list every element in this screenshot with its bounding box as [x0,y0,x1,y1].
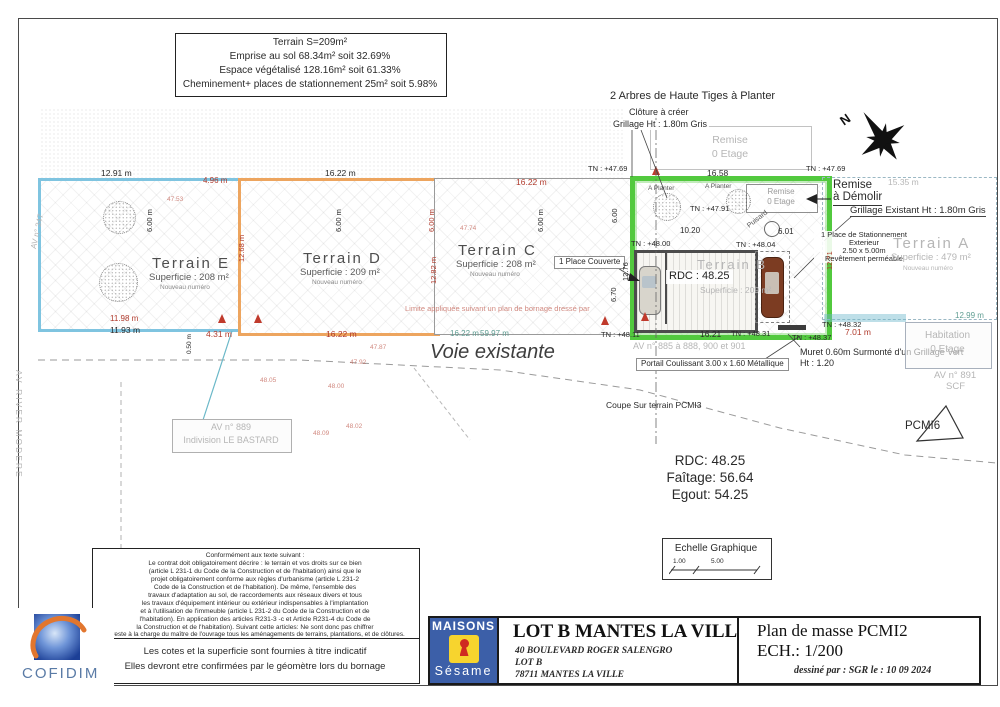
annotation-place-couverte: 1 Place Couverte [554,256,625,269]
legal-text-box: Conformément aux texte suivant : Le cont… [92,548,420,640]
legal-line: l'habitation). En application des articl… [95,616,415,623]
dim-label: 6.00 m [428,209,436,232]
terrain-e-name: Terrain E [152,256,230,272]
dim-label: 6.00 m [146,209,154,232]
dim-label: 12.71 [826,251,834,270]
annotation-av885: AV n° 885 à 888, 900 et 901 [633,342,746,352]
title-block-project: LOT B MANTES LA VILLE 40 BOULEVARD ROGER… [497,616,741,685]
cofidim-logo: COFIDIM [18,608,114,700]
annotation-coupe: Coupe Sur terrain PCMI3 [606,401,701,410]
annotation-a-planter: A Planter [648,185,674,192]
level-rdc: RDC: 48.25 [640,452,780,469]
dim-label: 6.00 m [335,209,343,232]
scale-bar-icon [669,565,765,575]
notes-box: Les cotes et la superficie sont fournies… [92,638,420,684]
levels-summary: RDC: 48.25 Faîtage: 56.64 Egout: 54.25 [640,452,780,503]
stats-line: Espace végétalisé 128.16m² soit 61.33% [176,66,444,77]
dim-label: 16.21 [700,330,721,339]
annotation-muret-2: Ht : 1.20 [798,359,836,369]
annotation-remise-demolir: Remise à Démolir [833,179,882,206]
annotation-limite-bornage: Limite appliquée suivant un plan de born… [405,305,590,313]
plan-title: Plan de masse PCMI2 [757,622,908,640]
annotation-grillage-existant: Grillage Existant Ht : 1.80m Gris [850,206,986,217]
survey-level: 47.92 [350,359,366,366]
dim-label: 16.58 [707,169,728,178]
title-block-plan: Plan de masse PCMI2 ECH.: 1/200 dessiné … [737,616,981,685]
limit-dashed [414,368,470,440]
dim-label: 12.82 m [430,257,438,284]
terrain-a-name: Terrain A [893,236,970,252]
av889-line: Indivision LE BASTARD [173,436,289,446]
arrow-left-icon [806,194,817,204]
stats-line: Cheminement+ places de stationnement 25m… [176,80,444,91]
project-address: 40 BOULEVARD ROGER SALENGRO [515,646,672,656]
stats-line: Terrain S=209m² [176,38,444,49]
annotation-grillage-cree: Grillage Ht : 1.80m Gris [611,120,709,130]
maisons-sesame-logo: MAISONS Sésame [428,616,501,685]
blue-network-line [203,331,232,420]
legal-line: les travaux d'équipement intérieur ou ex… [95,600,415,607]
maisons-logo-text: MAISONS [430,620,497,633]
compass-north-label: N [837,111,853,129]
survey-level: 47.87 [370,344,386,351]
legal-line: et à l'utilisation de l'immeuble (articl… [95,608,415,615]
av889-box: AV n° 889 Indivision LE BASTARD [172,419,292,453]
cofidim-swoosh-icon [18,604,114,670]
dim-label: 12.99 m [955,312,984,321]
plan-de-masse-sheet: Remise 0 Etage Remise 0 Etage [0,0,1000,707]
tn-level: TN : +48.00 [631,240,670,248]
scale-tick-1: 1.00 [673,558,686,565]
project-city: 78711 MANTES LA VILLE [515,670,624,680]
terrain-e-area: Superficie : 208 m² [149,273,229,283]
dim-label: 11.93 m [110,326,140,335]
annotation-pcmi6: PCMI6 [905,420,940,432]
annotation-a-planter: A Planter [705,183,731,190]
level-egout: Egout: 54.25 [640,486,780,503]
dim-label: 6.01 [778,228,794,237]
annotation-cloture: Clôture à créer [627,108,691,118]
terrain-c-area: Superficie : 208 m² [456,260,536,270]
survey-level: 48.05 [260,377,276,384]
survey-level: 48.02 [346,423,362,430]
sesame-logo-text: Sésame [430,665,497,679]
av889-line: AV n° 889 [173,423,289,433]
road-name-voie-existante: Voie existante [430,342,555,364]
tn-level: TN : +48.04 [736,241,775,249]
tn-level: TN : +48.37 [792,334,831,342]
habitation-line: Habitation [906,331,989,342]
dim-label: 12.91 m [101,169,132,178]
project-title: LOT B MANTES LA VILLE [513,622,750,643]
notes-line: Les cotes et la superficie sont fournies… [93,647,417,657]
tn-level: TN : +47.69 [806,165,845,173]
dim-label: 16.22 m [326,330,357,339]
habitation-line: 0 Etage [906,345,989,356]
tn-level: TN : +48.32 [822,321,861,329]
terrain-c-note: Nouveau numéro [470,271,520,278]
legal-line: (article L 231-1 du Code de la Construct… [95,568,415,575]
plan-scale: ECH.: 1/200 [757,642,843,660]
survey-level: 48.00 [328,383,344,390]
project-lot: LOT B [515,658,542,668]
terrain-b-area: Superficie : 209 m² [700,286,771,295]
terrain-d-note: Nouveau numéro [312,279,362,286]
terrain-d-name: Terrain D [303,251,382,267]
tn-level: TN : +47.91 [690,205,729,213]
scale-box: Echelle Graphique 1.00 5.00 [662,538,772,580]
legal-line: Conformément aux texte suivant : [95,552,415,559]
legal-line: Le contrat doit obligatoirement décrire … [95,560,415,567]
survey-level: 47.53 [167,196,183,203]
dim-label: 0.50 m [186,334,193,354]
annotation-arbres: 2 Arbres de Haute Tiges à Planter [608,91,777,103]
dim-label: 16.22 m [450,330,479,339]
dim-label: 10.20 [680,227,700,236]
remise-demolir-line: Remise [833,179,882,191]
terrain-b-rdc-level: RDC : 48.25 [666,270,733,284]
dim-label: 6.00 [611,208,619,223]
legal-line: travaux d'adaptation au sol, de raccorde… [95,592,415,599]
dim-label: 16.22 m [516,178,547,187]
survey-level: 47.74 [460,225,476,232]
keyhole-icon [449,635,479,663]
remise-demolir-line: à Démolir [833,191,882,203]
cofidim-logo-text: COFIDIM [22,666,99,682]
dim-label: 7.01 m [845,328,871,337]
dim-label: 4.96 m [203,177,227,186]
annotation-av891-scf: SCF [946,382,965,392]
legal-line: Code de la Construction et de l'habitati… [95,584,415,591]
terrain-a-area: Superficie : 479 m² [891,253,971,263]
street-label-river-modere: AV RIVER MODERE [14,370,23,570]
dim-label: 12.68 m [238,235,246,262]
tn-level: TN : +47.69 [588,165,627,173]
terrain-e-note: Nouveau numéro [160,284,210,291]
terrain-a-note: Nouveau numéro [903,265,953,272]
stats-line: Emprise au sol 68.34m² soit 32.69% [176,52,444,63]
legal-line: projet obligatoirement conforme aux règl… [95,576,415,583]
dim-label: 4.31 m [206,330,232,339]
annotation-portail: Portail Coulissant 3.00 x 1.60 Métalliqu… [636,358,789,371]
dim-label: 15.35 m [888,178,919,187]
compass-rose-icon: N [835,87,918,174]
notes-line: Elles devront etre confirmées par le géo… [93,662,417,672]
terrain-d-area: Superficie : 209 m² [300,268,380,278]
dim-label: 12.76 [622,262,630,281]
dim-label: 6.00 m [537,209,545,232]
plan-credit: dessiné par : SGR le : 10 09 2024 [794,666,931,677]
dim-label: 11.98 m [110,315,138,324]
dim-label: 6.70 [610,287,618,302]
terrain-c-name: Terrain C [458,243,537,259]
level-faitage: Faîtage: 56.64 [640,469,780,486]
tn-level: TN : +48.31 [731,330,770,338]
stats-box: Terrain S=209m² Emprise au sol 68.34m² s… [175,33,447,97]
scale-tick-5: 5.00 [711,558,724,565]
scale-title: Echelle Graphique [663,544,769,555]
dim-label: 16.22 m [325,169,356,178]
tn-level: TN : +48.11 [601,331,640,339]
annotation-av891: AV n° 891 [934,371,976,381]
survey-level: 48.09 [313,430,329,437]
habitation-box: Habitation 0 Etage [905,322,992,369]
dim-label: 59.97 m [480,330,509,339]
